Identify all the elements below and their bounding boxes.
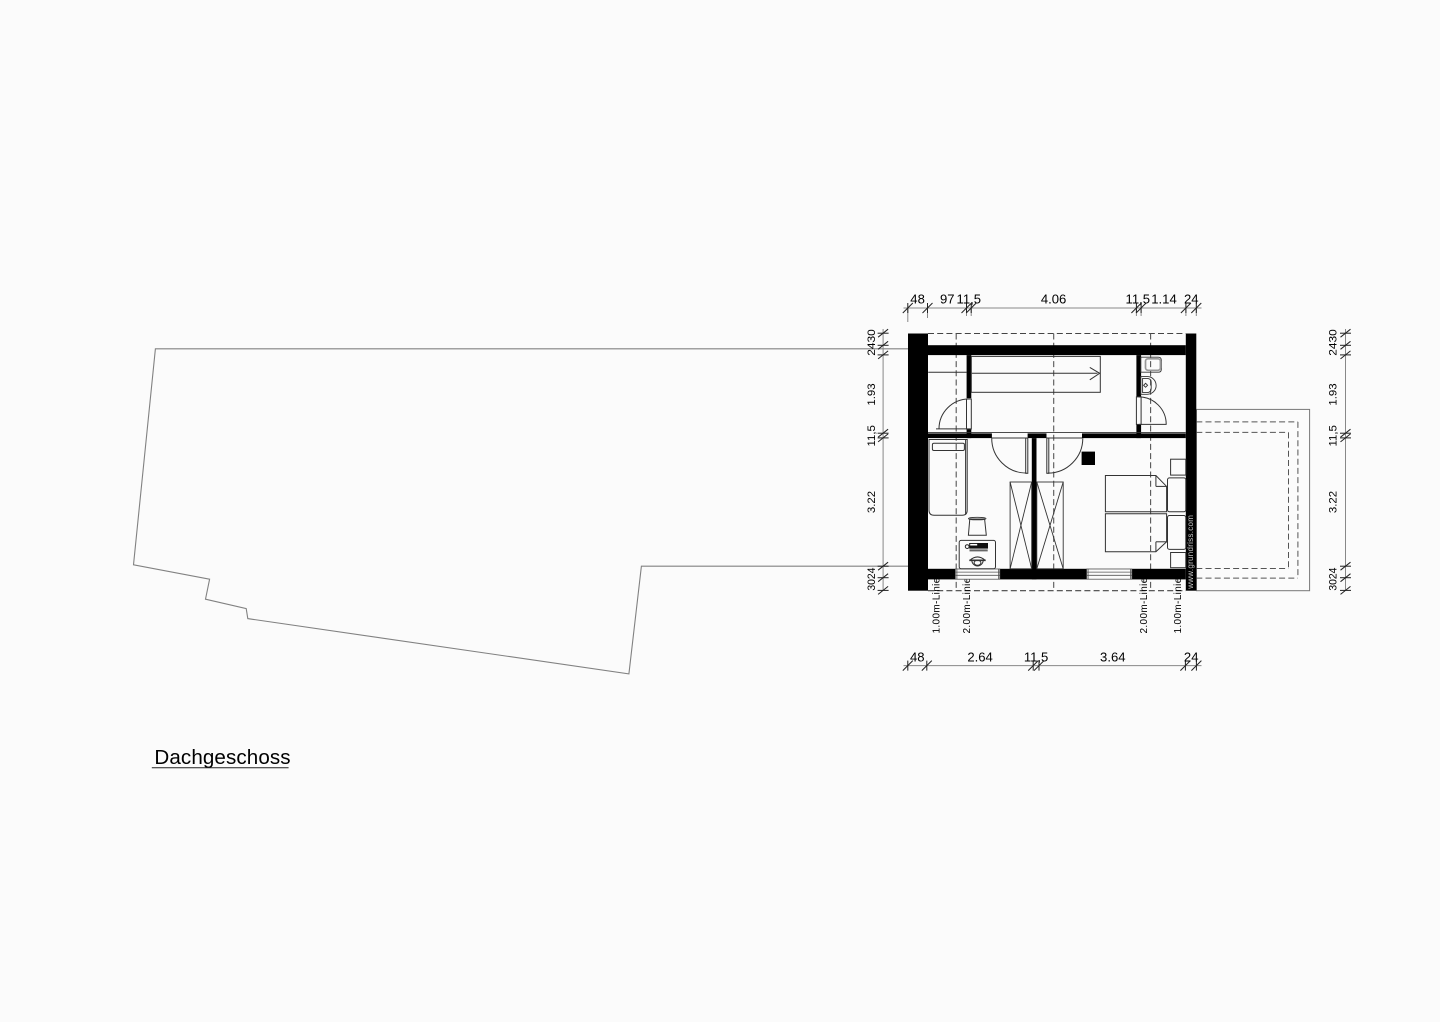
- svg-text:2.00m-Linie: 2.00m-Linie: [962, 577, 973, 633]
- svg-text:Dachgeschoss: Dachgeschoss: [154, 746, 290, 769]
- svg-text:48: 48: [910, 292, 925, 307]
- svg-text:48: 48: [910, 650, 925, 665]
- svg-text:3.22: 3.22: [1327, 491, 1339, 513]
- svg-text:1.14: 1.14: [1151, 292, 1176, 307]
- svg-text:11,5: 11,5: [1327, 425, 1339, 446]
- svg-text:24: 24: [1184, 292, 1199, 307]
- svg-text:1.93: 1.93: [1327, 383, 1339, 405]
- svg-text:2.64: 2.64: [967, 650, 992, 665]
- svg-text:2.00m-Linie: 2.00m-Linie: [1139, 577, 1150, 633]
- svg-text:2430: 2430: [866, 329, 878, 356]
- svg-text:3024: 3024: [866, 568, 878, 591]
- svg-text:11,5: 11,5: [1126, 292, 1151, 307]
- svg-text:3.22: 3.22: [866, 491, 878, 513]
- svg-text:24: 24: [1184, 650, 1199, 665]
- svg-text:97: 97: [940, 292, 955, 307]
- svg-text:1.00m-Linie: 1.00m-Linie: [1173, 577, 1184, 633]
- svg-text:11,5: 11,5: [1024, 650, 1049, 665]
- svg-text:4.06: 4.06: [1041, 292, 1066, 307]
- svg-text:11,5: 11,5: [957, 292, 982, 307]
- svg-text:3024: 3024: [1327, 568, 1339, 591]
- svg-text:11,5: 11,5: [866, 425, 878, 446]
- svg-text:3.64: 3.64: [1100, 650, 1125, 665]
- svg-text:1.93: 1.93: [866, 383, 878, 405]
- svg-text:www.grundriss.com: www.grundriss.com: [1186, 515, 1195, 590]
- svg-text:1.00m-Linie: 1.00m-Linie: [932, 577, 943, 633]
- svg-text:2430: 2430: [1327, 329, 1339, 356]
